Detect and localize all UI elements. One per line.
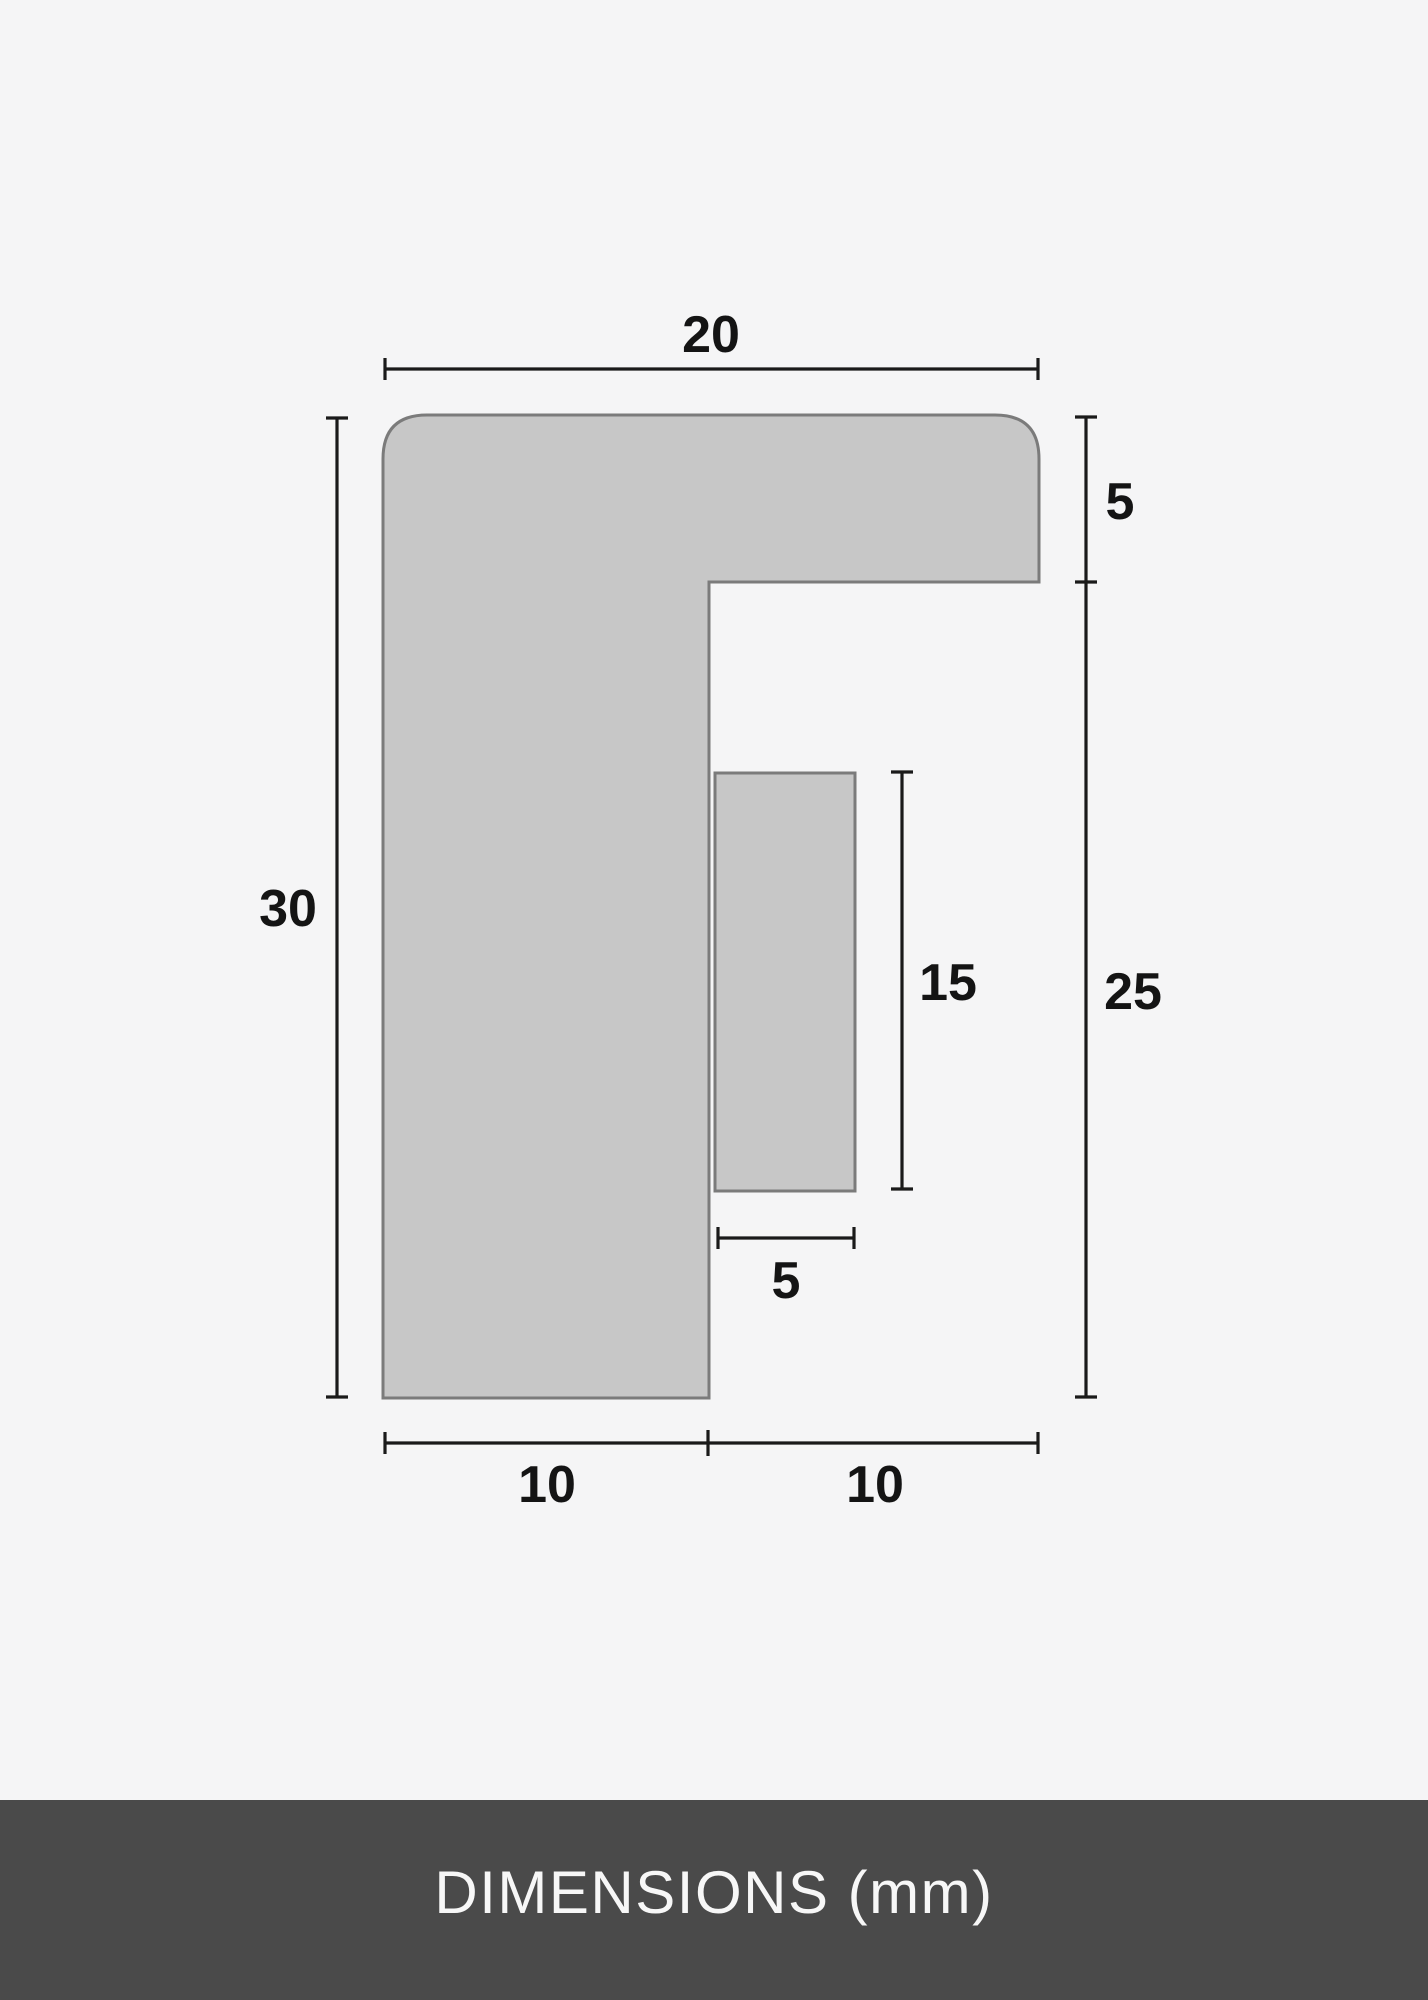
dim-label-overall-height: 30	[259, 880, 317, 938]
dim-label-bottom-left-width: 10	[518, 1456, 576, 1514]
frame-lip-shape	[715, 773, 855, 1191]
dim-label-top-arm-thickness: 5	[1106, 473, 1135, 531]
dim-label-lip-width: 5	[772, 1252, 801, 1310]
dim-overall-width: 20	[385, 306, 1038, 380]
dim-top-arm-thickness: 5	[1075, 417, 1134, 582]
dim-label-lip-height: 15	[919, 954, 977, 1012]
dim-right-side-height: 25	[1075, 582, 1162, 1397]
dim-lip-width: 5	[718, 1227, 854, 1310]
dim-label-right-side-height: 25	[1104, 963, 1162, 1021]
footer-caption: DIMENSIONS (mm)	[434, 1858, 993, 1927]
dim-lip-height: 15	[891, 772, 977, 1189]
frame-profile-shape	[383, 415, 1039, 1398]
dim-label-bottom-right-width: 10	[846, 1456, 904, 1514]
dim-bottom-widths: 10 10	[385, 1430, 1038, 1514]
dim-label-overall-width: 20	[682, 306, 740, 364]
dim-overall-height: 30	[259, 418, 348, 1397]
page: 20 30 5 25 15	[0, 0, 1428, 2000]
footer-bar: DIMENSIONS (mm)	[0, 1800, 1428, 2000]
profile-dimension-diagram: 20 30 5 25 15	[0, 0, 1428, 1800]
